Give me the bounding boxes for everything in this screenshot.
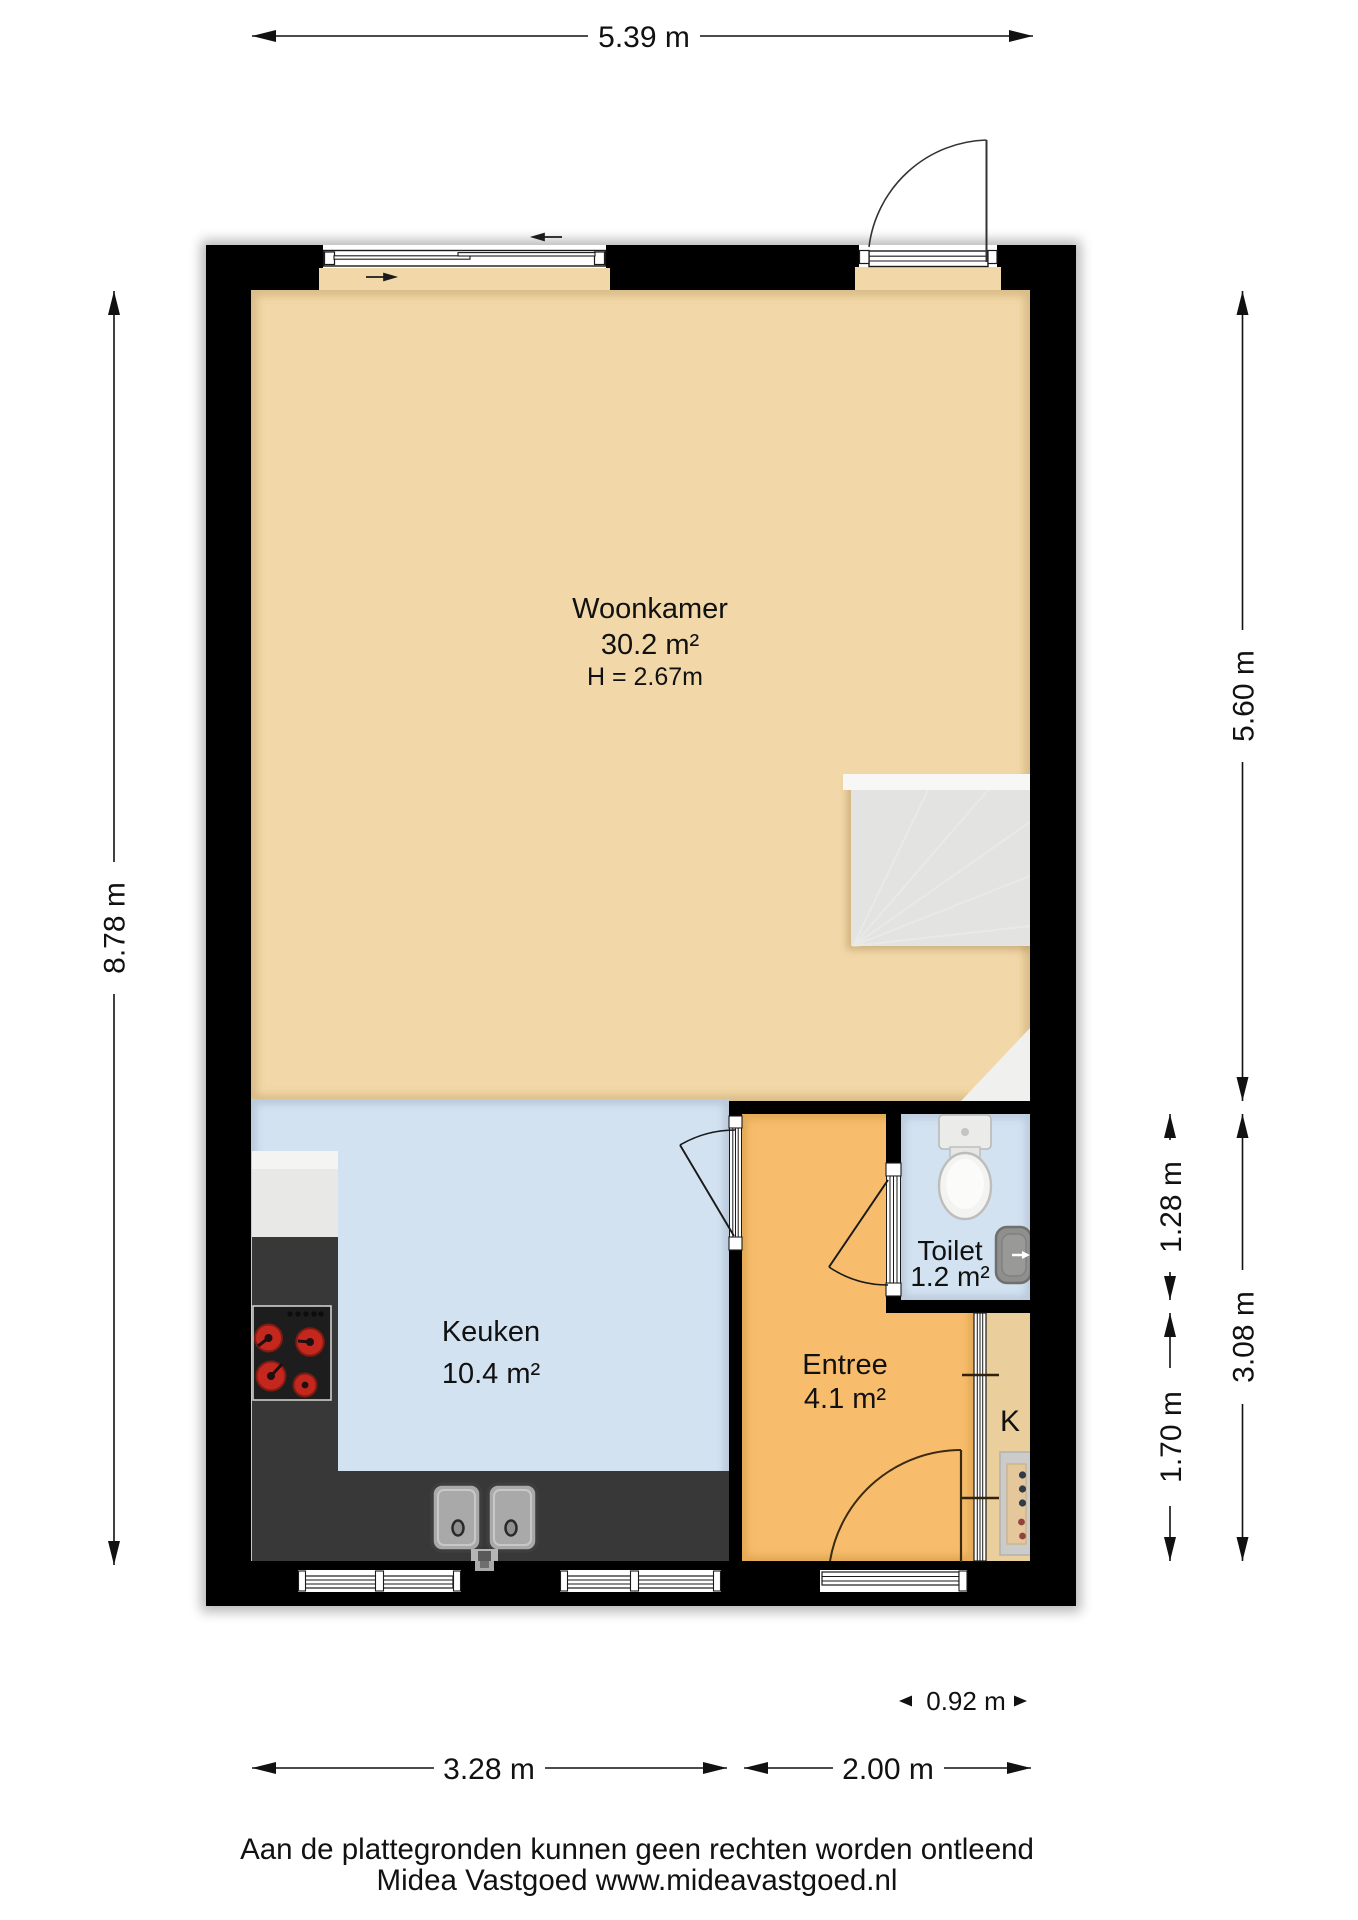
svg-text:Entree: Entree <box>802 1349 887 1381</box>
svg-text:5.60 m: 5.60 m <box>1228 650 1261 742</box>
svg-text:0.92 m: 0.92 m <box>926 1686 1006 1716</box>
svg-text:5.39 m: 5.39 m <box>598 21 690 54</box>
svg-text:Keuken: Keuken <box>442 1316 540 1348</box>
svg-text:1.28 m: 1.28 m <box>1155 1161 1188 1253</box>
svg-text:4.1 m²: 4.1 m² <box>804 1383 887 1415</box>
svg-text:2.00 m: 2.00 m <box>842 1753 934 1786</box>
svg-text:3.08 m: 3.08 m <box>1228 1291 1261 1383</box>
svg-text:10.4 m²: 10.4 m² <box>442 1358 541 1390</box>
svg-text:K: K <box>1000 1405 1020 1438</box>
svg-text:8.78 m: 8.78 m <box>99 882 132 974</box>
svg-text:3.28 m: 3.28 m <box>443 1753 535 1786</box>
svg-text:30.2 m²: 30.2 m² <box>601 629 700 661</box>
svg-text:Midea Vastgoed www.mideavastgo: Midea Vastgoed www.mideavastgoed.nl <box>377 1864 898 1897</box>
svg-text:Woonkamer: Woonkamer <box>572 593 728 625</box>
svg-text:H = 2.67m: H = 2.67m <box>587 663 703 691</box>
svg-text:Aan de plattegronden kunnen ge: Aan de plattegronden kunnen geen rechten… <box>240 1833 1034 1866</box>
svg-text:1.2 m²: 1.2 m² <box>910 1261 989 1292</box>
svg-text:1.70 m: 1.70 m <box>1155 1391 1188 1483</box>
